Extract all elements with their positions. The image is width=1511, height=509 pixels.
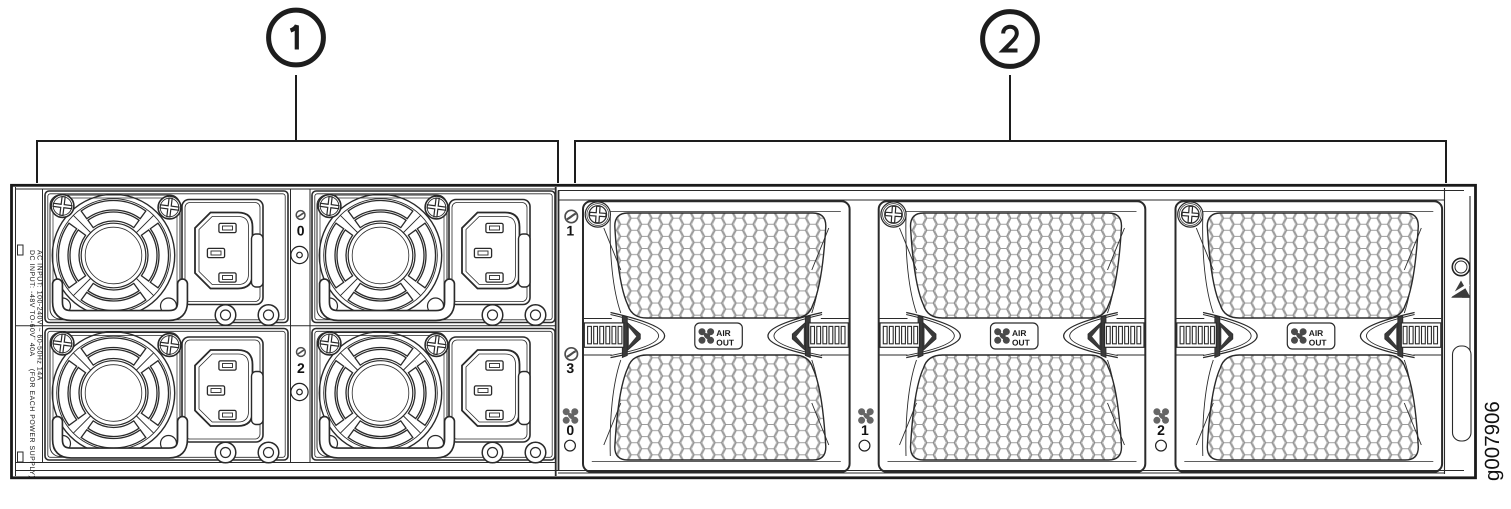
svg-text:0: 0 xyxy=(297,223,305,239)
svg-text:0: 0 xyxy=(566,422,574,438)
svg-text:DC INPUT: -48V TO-60V ⃛ 40A: DC INPUT: -48V TO-60V ⃛ 40A (FOR EACH PO… xyxy=(28,250,36,478)
svg-text:2: 2 xyxy=(297,360,305,376)
svg-text:1: 1 xyxy=(566,223,574,239)
svg-text:AC INPUT: 100-240V ~ 60-50Hz 1: AC INPUT: 100-240V ~ 60-50Hz 14A xyxy=(36,250,43,381)
svg-text:1: 1 xyxy=(861,422,869,438)
svg-text:g007906: g007906 xyxy=(1481,401,1504,481)
svg-text:2: 2 xyxy=(1157,422,1165,438)
svg-text:3: 3 xyxy=(566,360,574,376)
